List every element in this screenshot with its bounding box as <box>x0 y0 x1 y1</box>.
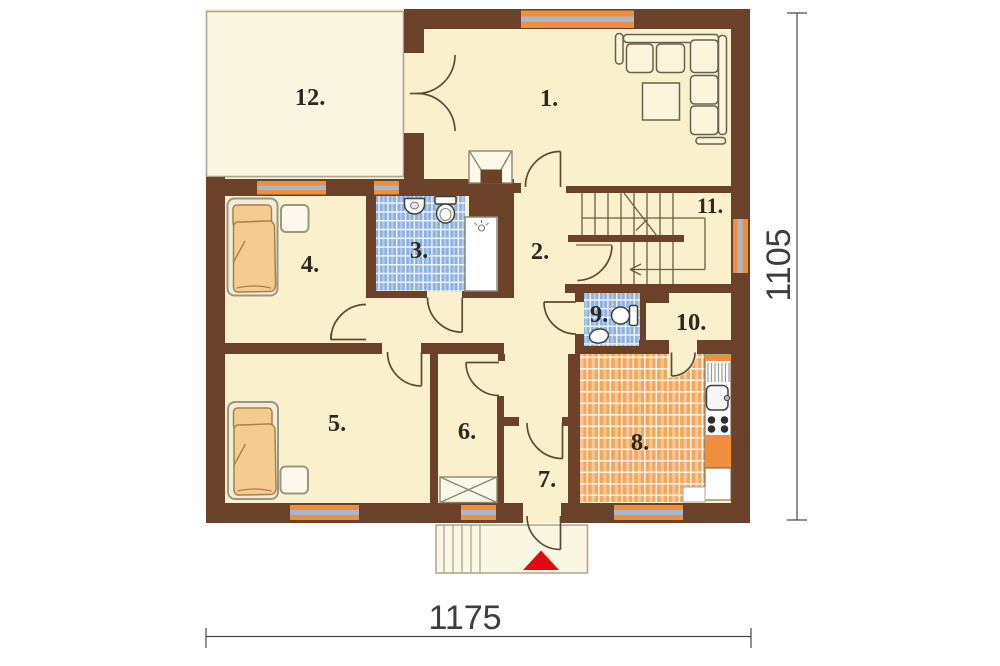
svg-text:10.: 10. <box>676 309 707 336</box>
svg-text:11.: 11. <box>697 193 723 218</box>
svg-text:8.: 8. <box>631 429 649 456</box>
svg-text:4.: 4. <box>301 251 319 278</box>
svg-text:1105: 1105 <box>760 228 798 301</box>
svg-text:1175: 1175 <box>428 599 501 637</box>
svg-text:5.: 5. <box>328 410 346 437</box>
svg-text:6.: 6. <box>458 418 476 445</box>
svg-text:2.: 2. <box>531 238 549 265</box>
svg-text:7.: 7. <box>538 466 556 493</box>
svg-text:12.: 12. <box>295 84 326 111</box>
svg-text:3.: 3. <box>410 237 428 264</box>
svg-text:1.: 1. <box>540 85 558 112</box>
svg-text:9.: 9. <box>590 301 608 328</box>
